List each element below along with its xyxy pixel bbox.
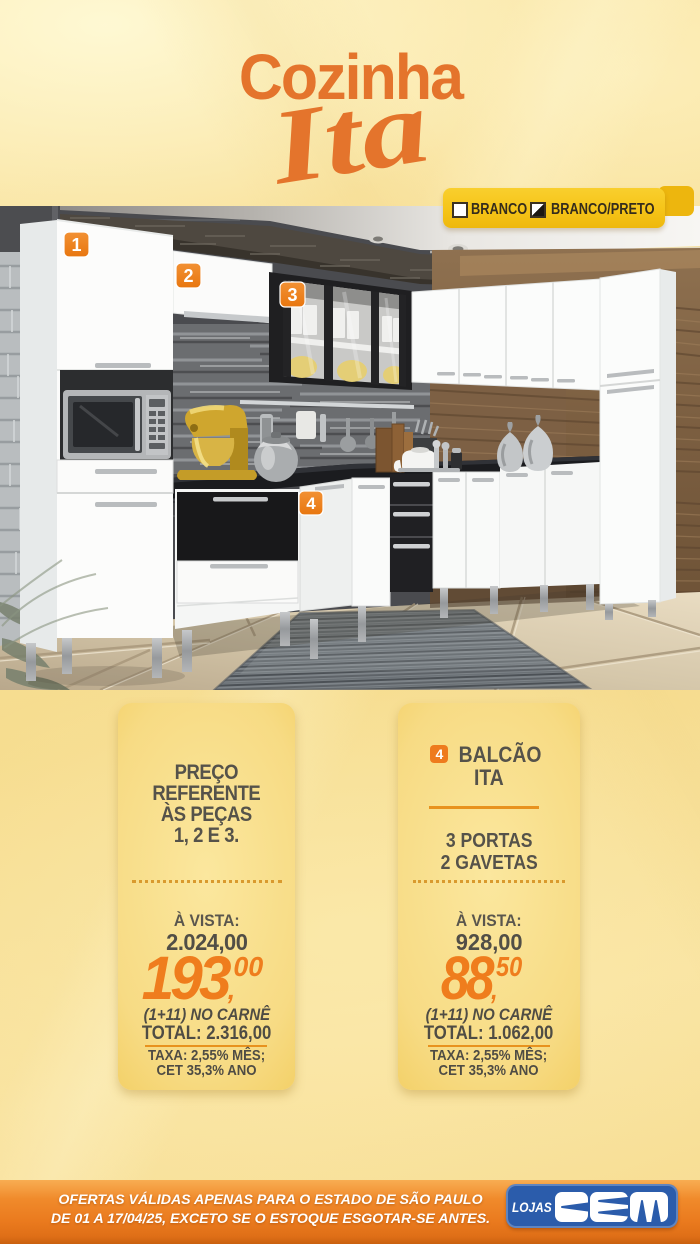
svg-text:3: 3 (287, 285, 297, 305)
svg-text:1: 1 (71, 235, 81, 255)
svg-text:2: 2 (183, 266, 193, 286)
svg-text:4: 4 (306, 494, 316, 513)
